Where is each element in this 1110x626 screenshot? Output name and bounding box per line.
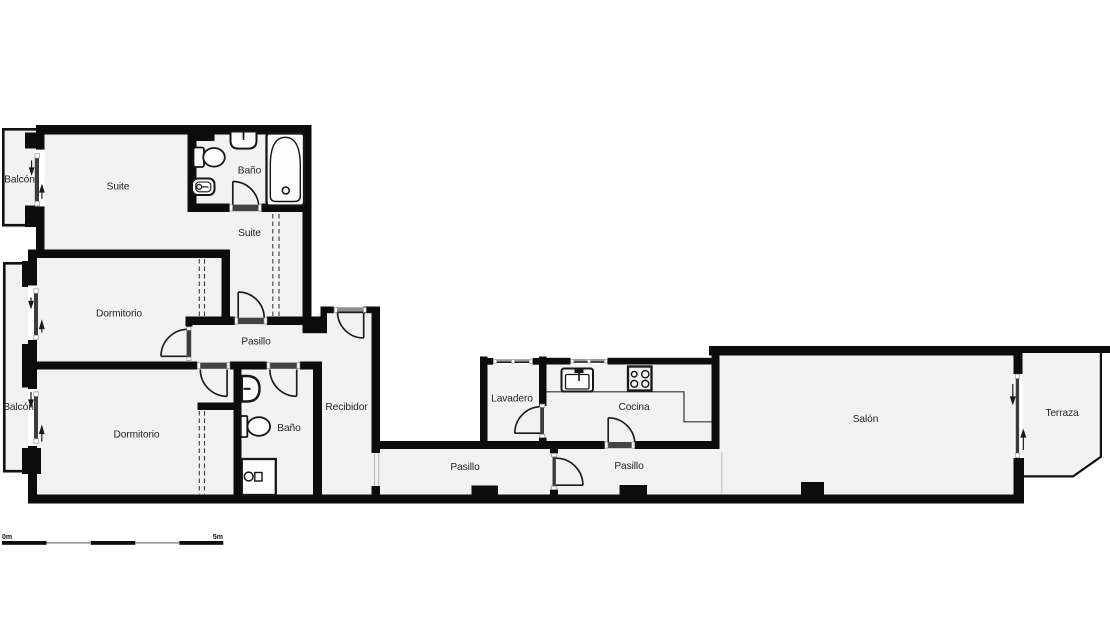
- svg-text:Lavadero: Lavadero: [491, 394, 533, 405]
- svg-text:Baño: Baño: [238, 166, 262, 177]
- svg-text:Pasillo: Pasillo: [241, 337, 271, 348]
- svg-text:0m: 0m: [2, 534, 12, 541]
- svg-text:Balcón: Balcón: [4, 175, 35, 186]
- svg-text:5m: 5m: [213, 534, 223, 541]
- svg-text:Suite: Suite: [238, 228, 261, 239]
- svg-text:Baño: Baño: [277, 423, 301, 434]
- svg-text:Dormitorio: Dormitorio: [96, 309, 142, 320]
- svg-text:Suite: Suite: [107, 182, 130, 193]
- svg-text:Terraza: Terraza: [1045, 408, 1079, 419]
- svg-text:Balcón: Balcón: [3, 402, 34, 413]
- svg-text:Dormitorio: Dormitorio: [114, 430, 160, 441]
- svg-text:Pasillo: Pasillo: [450, 462, 480, 473]
- svg-text:Salón: Salón: [853, 414, 879, 425]
- svg-text:Pasillo: Pasillo: [614, 461, 644, 472]
- svg-text:Cocina: Cocina: [618, 402, 650, 413]
- svg-text:Recibidor: Recibidor: [325, 402, 368, 413]
